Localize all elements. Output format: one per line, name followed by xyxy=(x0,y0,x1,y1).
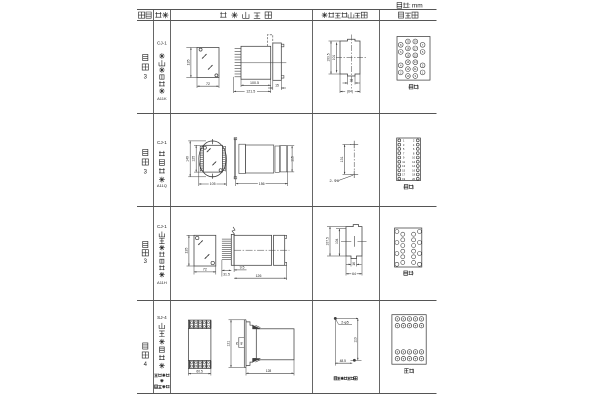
svg-text:4: 4 xyxy=(144,362,148,368)
svg-text:19: 19 xyxy=(402,177,405,181)
svg-text:9: 9 xyxy=(415,74,417,78)
svg-text:15: 15 xyxy=(414,53,417,57)
svg-text:48.5: 48.5 xyxy=(340,359,347,363)
svg-text:115: 115 xyxy=(291,156,295,162)
svg-text:(64): (64) xyxy=(347,90,353,94)
svg-text:A11H: A11H xyxy=(157,280,167,285)
svg-text:15: 15 xyxy=(275,84,279,88)
svg-text:mm: mm xyxy=(412,3,423,10)
svg-text:4: 4 xyxy=(400,63,402,67)
svg-text::: : xyxy=(409,3,411,9)
svg-text:): ) xyxy=(412,184,414,189)
svg-text:19: 19 xyxy=(414,40,417,44)
svg-text:10: 10 xyxy=(412,156,415,160)
svg-text:A11K: A11K xyxy=(157,96,167,101)
svg-text:8: 8 xyxy=(413,151,415,155)
svg-text:): ) xyxy=(413,368,415,373)
svg-text:18: 18 xyxy=(406,46,409,50)
svg-text:1: 1 xyxy=(422,70,424,74)
svg-text:2: 2 xyxy=(400,70,402,74)
svg-text:7: 7 xyxy=(403,151,405,155)
svg-text:3: 3 xyxy=(422,63,424,67)
svg-text:5: 5 xyxy=(422,50,424,54)
svg-text:CJ-1: CJ-1 xyxy=(157,41,167,46)
svg-text:121: 121 xyxy=(227,341,231,347)
svg-text:SJ-4: SJ-4 xyxy=(157,315,167,320)
svg-text:12: 12 xyxy=(412,160,415,164)
svg-text:9.5: 9.5 xyxy=(240,266,245,270)
svg-text:9: 9 xyxy=(403,156,405,160)
svg-text:5: 5 xyxy=(403,147,405,151)
svg-text:135: 135 xyxy=(184,248,188,254)
svg-text:64: 64 xyxy=(352,272,356,276)
svg-text:100.5: 100.5 xyxy=(250,81,259,85)
svg-text:17: 17 xyxy=(414,46,417,50)
svg-text:131: 131 xyxy=(340,156,344,162)
svg-text:6: 6 xyxy=(413,147,415,151)
svg-text:104: 104 xyxy=(335,238,339,244)
svg-text:13: 13 xyxy=(414,60,417,64)
svg-text:7: 7 xyxy=(422,43,424,47)
svg-text:14: 14 xyxy=(406,60,409,64)
svg-text:135: 135 xyxy=(186,60,190,66)
svg-text:3: 3 xyxy=(403,143,405,147)
svg-text:72: 72 xyxy=(206,82,210,86)
svg-text:121.5: 121.5 xyxy=(246,90,255,94)
svg-text:16: 16 xyxy=(349,79,353,83)
svg-text:20: 20 xyxy=(412,177,415,181)
svg-text:3: 3 xyxy=(144,259,148,265)
svg-text:18: 18 xyxy=(412,173,415,177)
svg-text:107.5: 107.5 xyxy=(326,237,330,245)
svg-text:156: 156 xyxy=(259,182,265,186)
svg-text:): ) xyxy=(412,271,414,276)
svg-text:): ) xyxy=(417,84,419,89)
svg-text:17: 17 xyxy=(402,173,405,177)
svg-text:6: 6 xyxy=(400,50,402,54)
svg-text:1: 1 xyxy=(403,139,405,143)
svg-text:4: 4 xyxy=(413,143,415,147)
svg-text:105: 105 xyxy=(210,182,216,186)
svg-text:101: 101 xyxy=(332,55,336,61)
svg-text:72: 72 xyxy=(203,268,207,272)
svg-text:16: 16 xyxy=(352,262,356,266)
svg-text:11: 11 xyxy=(402,160,405,164)
svg-text:3: 3 xyxy=(144,170,148,176)
svg-text:11: 11 xyxy=(414,67,417,71)
svg-text:2: 2 xyxy=(413,139,415,143)
svg-text:48: 48 xyxy=(239,342,243,346)
svg-text:10: 10 xyxy=(406,74,409,78)
svg-text:14: 14 xyxy=(412,164,415,168)
svg-text:12: 12 xyxy=(406,67,409,71)
svg-text:CJ-1: CJ-1 xyxy=(157,140,167,145)
svg-text:2-φ5: 2-φ5 xyxy=(341,320,349,324)
svg-text:A11Q: A11Q xyxy=(157,183,167,188)
svg-text:31.5: 31.5 xyxy=(223,272,230,276)
svg-text:16: 16 xyxy=(406,53,409,57)
svg-text:16: 16 xyxy=(412,168,415,172)
svg-text:20: 20 xyxy=(406,40,409,44)
svg-text:Φ6: Φ6 xyxy=(334,179,339,183)
svg-text:149: 149 xyxy=(186,156,190,162)
svg-text:3: 3 xyxy=(144,75,148,81)
svg-text:60.5: 60.5 xyxy=(196,369,203,373)
svg-text:13: 13 xyxy=(402,164,405,168)
svg-text:103.5: 103.5 xyxy=(327,53,331,61)
svg-text:110: 110 xyxy=(353,337,357,342)
svg-text:CJ-1: CJ-1 xyxy=(157,224,167,229)
svg-text:15: 15 xyxy=(402,168,405,172)
svg-text:125: 125 xyxy=(192,156,196,162)
svg-text:126: 126 xyxy=(256,274,262,278)
svg-text:128: 128 xyxy=(266,369,272,373)
svg-text:8: 8 xyxy=(400,43,402,47)
